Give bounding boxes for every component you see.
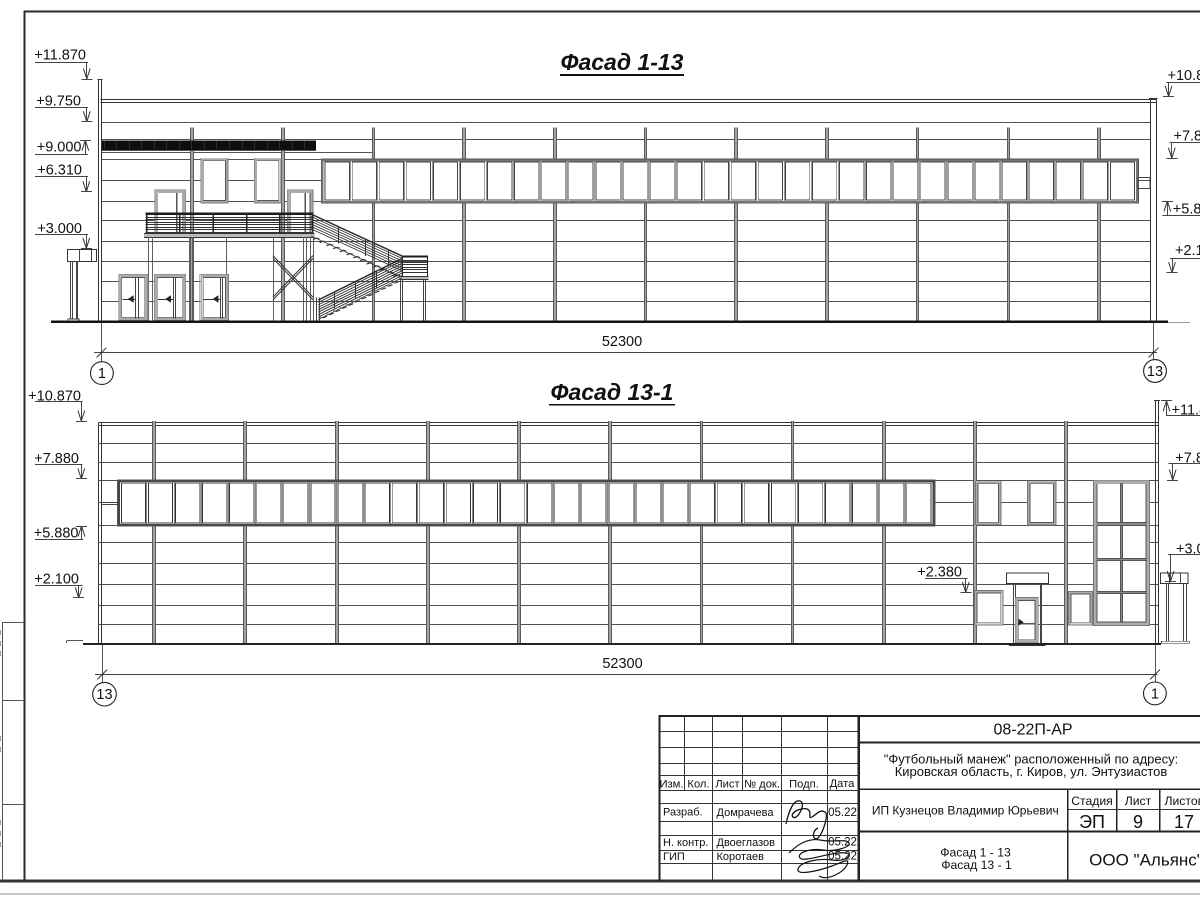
svg-text:Лист: Лист xyxy=(1125,794,1152,808)
svg-text:+7.8: +7.8 xyxy=(1175,451,1200,467)
svg-text:17: 17 xyxy=(1174,812,1194,832)
svg-text:9: 9 xyxy=(1133,812,1143,832)
svg-text:ИП Кузнецов Владимир Юрьевич: ИП Кузнецов Владимир Юрьевич xyxy=(872,804,1059,818)
svg-text:Кол.: Кол. xyxy=(687,778,709,790)
svg-text:1: 1 xyxy=(1151,686,1159,702)
svg-text:08-22П-АР: 08-22П-АР xyxy=(993,722,1072,739)
svg-text:Двоеглазов: Двоеглазов xyxy=(717,837,776,849)
svg-text:+9.000: +9.000 xyxy=(37,139,82,155)
svg-text:52300: 52300 xyxy=(602,334,642,350)
svg-text:ООО "Альянс": ООО "Альянс" xyxy=(1089,851,1200,870)
svg-text:Стадия: Стадия xyxy=(1071,794,1113,808)
svg-text:Фасад 13 - 1: Фасад 13 - 1 xyxy=(941,858,1012,872)
svg-text:05.22: 05.22 xyxy=(828,836,857,848)
svg-text:№ док.: № док. xyxy=(744,778,780,790)
svg-text:13: 13 xyxy=(1147,364,1163,380)
svg-text:+11.870: +11.870 xyxy=(34,48,86,64)
svg-text:Изм.: Изм. xyxy=(660,778,684,790)
svg-text:05.22: 05.22 xyxy=(828,807,857,819)
svg-text:Фасад 13-1: Фасад 13-1 xyxy=(551,379,674,405)
svg-text:Н. контр.: Н. контр. xyxy=(663,837,708,849)
svg-text:Коротаев: Коротаев xyxy=(717,851,765,863)
svg-text:+10.8: +10.8 xyxy=(1168,68,1200,84)
svg-text:Домрачева: Домрачева xyxy=(717,807,775,819)
svg-text:+9.750: +9.750 xyxy=(36,93,81,109)
svg-text:ГИП: ГИП xyxy=(663,851,685,863)
svg-text:Разраб.: Разраб. xyxy=(663,807,703,819)
svg-text:Лист: Лист xyxy=(715,778,739,790)
svg-text:Фасад 1-13: Фасад 1-13 xyxy=(561,49,684,75)
svg-text:ЭП: ЭП xyxy=(1079,812,1105,832)
svg-text:1: 1 xyxy=(98,366,106,382)
svg-text:52300: 52300 xyxy=(602,656,642,672)
svg-text:Листов: Листов xyxy=(1165,794,1200,808)
svg-text:Кировская область, г. Киров, у: Кировская область, г. Киров, ул. Энтузиа… xyxy=(895,764,1168,779)
svg-text:Дата: Дата xyxy=(830,778,856,790)
svg-text:+2.1: +2.1 xyxy=(1175,243,1200,259)
svg-text:+6.310: +6.310 xyxy=(37,162,82,178)
svg-text:13: 13 xyxy=(96,687,112,703)
svg-text:Подп.: Подп. xyxy=(789,778,819,790)
